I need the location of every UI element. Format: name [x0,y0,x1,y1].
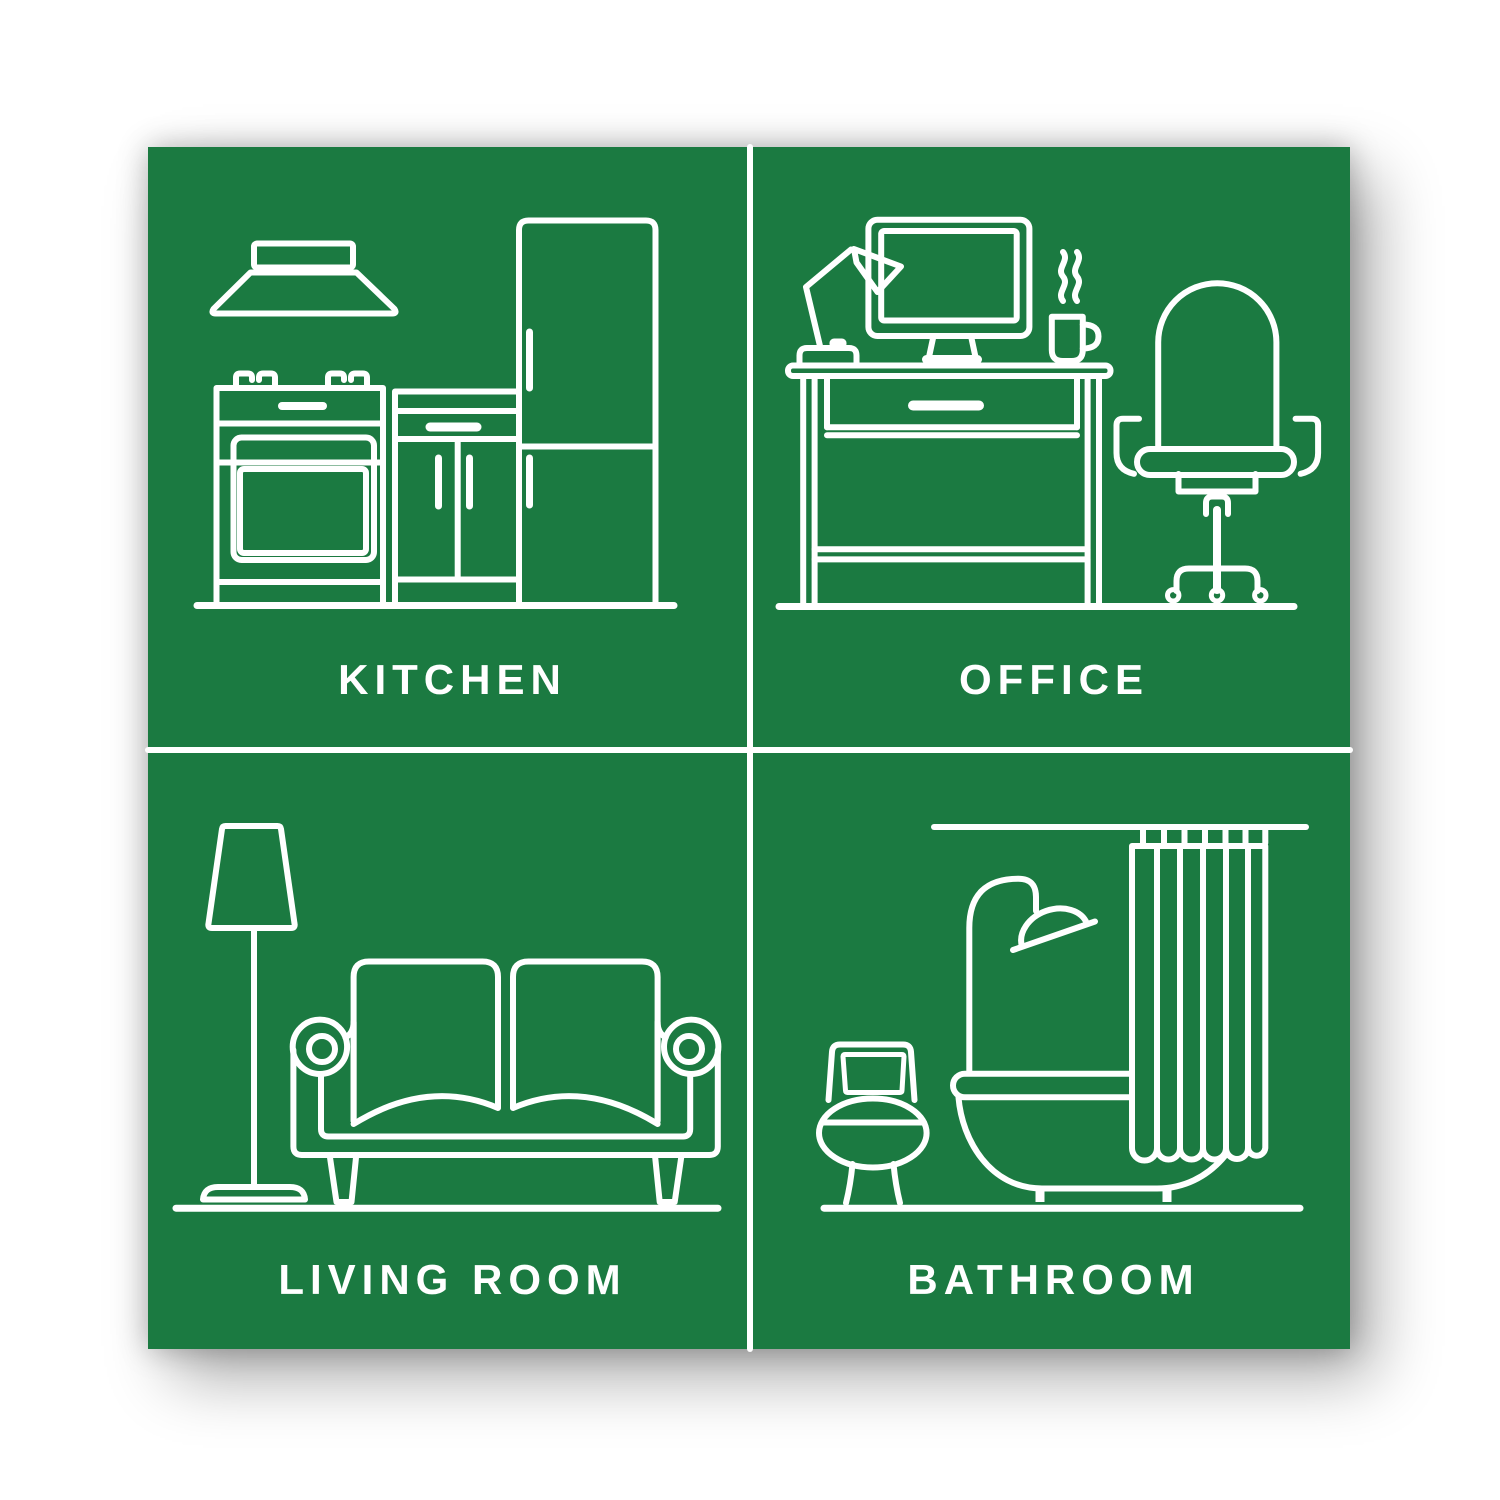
svg-text:OFFICE: OFFICE [959,656,1149,703]
svg-text:LIVING ROOM: LIVING ROOM [278,1256,626,1303]
svg-text:KITCHEN: KITCHEN [338,656,567,703]
svg-text:BATHROOM: BATHROOM [907,1256,1199,1303]
